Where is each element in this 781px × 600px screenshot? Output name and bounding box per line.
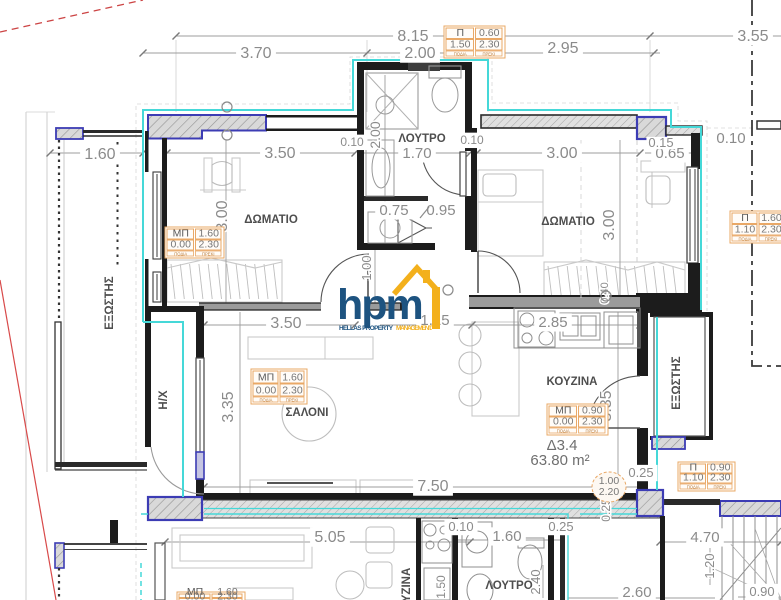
svg-text:2.30: 2.30 bbox=[199, 239, 220, 251]
svg-text:ΠΡΕΚΙ: ΠΡΕΚΙ bbox=[585, 428, 598, 433]
svg-text:2.30: 2.30 bbox=[710, 472, 731, 484]
svg-text:ΔΩΜΑΤΙΟ: ΔΩΜΑΤΙΟ bbox=[244, 214, 298, 226]
svg-text:ΜΠ: ΜΠ bbox=[258, 372, 274, 384]
svg-text:ΠΟΔΙΑ: ΠΟΔΙΑ bbox=[739, 236, 752, 241]
svg-text:0.10: 0.10 bbox=[340, 135, 364, 149]
svg-text:2.20: 2.20 bbox=[599, 486, 620, 498]
svg-text:ΚΟΥΖΙΝΑ: ΚΟΥΖΙΝΑ bbox=[547, 376, 598, 388]
svg-text:1.50: 1.50 bbox=[434, 575, 448, 599]
svg-text:0.00: 0.00 bbox=[185, 591, 206, 600]
svg-text:1.60: 1.60 bbox=[282, 372, 303, 384]
svg-text:2.30: 2.30 bbox=[217, 591, 238, 600]
svg-text:5.05: 5.05 bbox=[314, 529, 345, 546]
svg-text:7.50: 7.50 bbox=[417, 478, 448, 495]
svg-text:1.60: 1.60 bbox=[84, 146, 115, 163]
svg-text:3.50: 3.50 bbox=[270, 315, 301, 332]
svg-text:0.60: 0.60 bbox=[479, 27, 500, 39]
svg-text:ΕΞΩΣΤΗΣ: ΕΞΩΣΤΗΣ bbox=[104, 276, 116, 330]
svg-text:0.00: 0.00 bbox=[256, 385, 277, 397]
svg-text:1.10: 1.10 bbox=[683, 472, 704, 484]
svg-text:3.70: 3.70 bbox=[240, 45, 271, 62]
svg-text:ΠΟΔΙΑ: ΠΟΔΙΑ bbox=[454, 51, 467, 56]
svg-text:ΠΡΕΚΙ: ΠΡΕΚΙ bbox=[765, 236, 778, 241]
svg-text:0.00: 0.00 bbox=[171, 239, 192, 251]
svg-text:ΠΡΕΚΙ: ΠΡΕΚΙ bbox=[286, 397, 299, 402]
svg-text:2.85: 2.85 bbox=[538, 314, 567, 331]
svg-text:0.00: 0.00 bbox=[553, 416, 574, 428]
svg-text:3.55: 3.55 bbox=[737, 28, 768, 45]
svg-text:2.30: 2.30 bbox=[582, 416, 603, 428]
svg-text:2.60: 2.60 bbox=[622, 584, 651, 600]
svg-text:Η/Χ: Η/Χ bbox=[158, 390, 170, 410]
svg-text:0.15: 0.15 bbox=[648, 135, 673, 150]
svg-text:0.10: 0.10 bbox=[448, 519, 473, 534]
svg-text:0.25: 0.25 bbox=[628, 465, 653, 480]
svg-text:ΠΟΔΙΑ: ΠΟΔΙΑ bbox=[260, 397, 273, 402]
svg-text:ΥΖΙΝΑ: ΥΖΙΝΑ bbox=[401, 568, 413, 600]
svg-text:2.30: 2.30 bbox=[479, 39, 500, 51]
svg-text:ΠΟΔΙΑ: ΠΟΔΙΑ bbox=[687, 484, 700, 489]
svg-text:63.80 m²: 63.80 m² bbox=[530, 452, 589, 469]
svg-text:ΠΡΕΚΙ: ΠΡΕΚΙ bbox=[482, 51, 495, 56]
svg-text:2.95: 2.95 bbox=[547, 40, 578, 57]
svg-text:2.30: 2.30 bbox=[761, 224, 781, 236]
svg-text:0.75: 0.75 bbox=[379, 202, 408, 219]
svg-text:1.20: 1.20 bbox=[702, 553, 717, 578]
svg-text:ΠΟΔΙΑ: ΠΟΔΙΑ bbox=[174, 251, 187, 256]
svg-text:1.70: 1.70 bbox=[402, 145, 431, 162]
svg-text:0.10: 0.10 bbox=[460, 133, 484, 147]
svg-text:2.40: 2.40 bbox=[528, 569, 543, 594]
svg-text:HELLAS PROPERTY: HELLAS PROPERTY bbox=[339, 325, 394, 332]
svg-text:0.25: 0.25 bbox=[548, 519, 573, 534]
svg-text:2.00: 2.00 bbox=[404, 45, 435, 62]
svg-text:2.00: 2.00 bbox=[367, 121, 383, 148]
svg-text:ΛΟΥΤΡΟ: ΛΟΥΤΡΟ bbox=[485, 580, 532, 592]
svg-text:3.00: 3.00 bbox=[601, 209, 618, 240]
svg-text:ΕΞΩΣΤΗΣ: ΕΞΩΣΤΗΣ bbox=[671, 356, 683, 410]
svg-text:8.15: 8.15 bbox=[397, 28, 428, 45]
svg-text:1.00: 1.00 bbox=[359, 255, 374, 280]
svg-text:3.00: 3.00 bbox=[546, 145, 577, 162]
svg-text:0.95: 0.95 bbox=[426, 202, 455, 219]
svg-text:1.10: 1.10 bbox=[735, 224, 756, 236]
svg-text:0.10: 0.10 bbox=[716, 130, 745, 147]
svg-text:1.60: 1.60 bbox=[761, 212, 781, 224]
svg-text:0.90: 0.90 bbox=[749, 584, 774, 599]
svg-text:MANAGEMENT.: MANAGEMENT. bbox=[396, 325, 432, 332]
svg-text:hpm: hpm bbox=[337, 281, 422, 329]
svg-text:4.70: 4.70 bbox=[690, 529, 719, 546]
svg-text:ΠΟΔΙΑ: ΠΟΔΙΑ bbox=[557, 428, 570, 433]
svg-text:3.35: 3.35 bbox=[220, 391, 237, 422]
svg-text:ΠΡΕΚΙ: ΠΡΕΚΙ bbox=[713, 484, 726, 489]
svg-text:2.30: 2.30 bbox=[282, 385, 303, 397]
svg-text:ΠΡΕΚΙ: ΠΡΕΚΙ bbox=[202, 251, 215, 256]
svg-text:ΔΩΜΑΤΙΟ: ΔΩΜΑΤΙΟ bbox=[541, 216, 595, 228]
svg-text:Π: Π bbox=[456, 27, 464, 39]
svg-text:ΣΑΛΟΝΙ: ΣΑΛΟΝΙ bbox=[285, 407, 328, 419]
svg-text:ΛΟΥΤΡΟ: ΛΟΥΤΡΟ bbox=[398, 133, 445, 145]
svg-text:3.50: 3.50 bbox=[264, 145, 295, 162]
svg-text:Π: Π bbox=[741, 212, 749, 224]
svg-text:1.60: 1.60 bbox=[492, 528, 521, 545]
svg-text:1.50: 1.50 bbox=[450, 39, 471, 51]
